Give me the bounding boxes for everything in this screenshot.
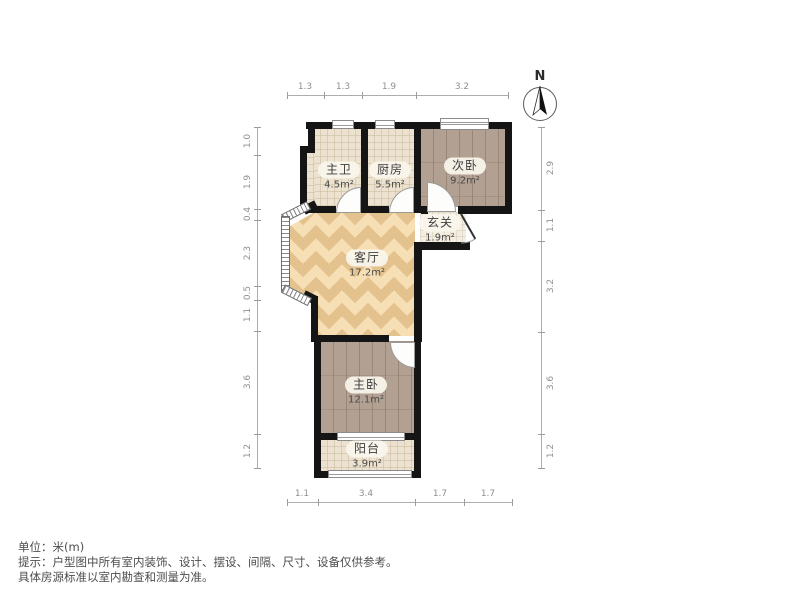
wall-right-bedroom2 <box>505 122 512 214</box>
room-name: 玄关 <box>419 215 461 232</box>
window-master-bath <box>332 120 354 129</box>
room-name: 厨房 <box>369 162 411 179</box>
dim-label: 1.7 <box>481 489 495 499</box>
dim-label: 0.5 <box>243 286 253 300</box>
compass-needle-east <box>540 86 547 115</box>
dim-label: 3.4 <box>359 489 373 499</box>
room-area: 3.9m² <box>346 459 388 471</box>
dim-label: 3.2 <box>546 279 556 293</box>
room-label-bedroom-second: 次卧 9.2m² <box>444 155 486 188</box>
north-label: N <box>535 69 546 84</box>
room-floor-master-bath-ext <box>306 150 315 206</box>
room-name: 主卧 <box>345 377 387 394</box>
window-kitchen <box>375 120 395 129</box>
room-area: 4.5m² <box>318 180 360 192</box>
dim-label: 1.0 <box>243 134 253 148</box>
dim-label: 1.3 <box>336 82 350 92</box>
dim-label: 3.6 <box>546 376 556 390</box>
wall-living-bedroom-divider <box>311 335 389 342</box>
room-name: 阳台 <box>346 441 388 458</box>
dim-label: 1.9 <box>382 82 396 92</box>
room-label-living-room: 客厅 17.2m² <box>346 247 388 280</box>
wall-slider-stub-right <box>404 433 421 440</box>
room-label-hallway: 玄关 1.9m² <box>419 212 461 245</box>
room-area: 5.5m² <box>369 180 411 192</box>
tip-note-line1: 提示：户型图中所有室内装饰、设计、摆设、间隔、尺寸、设备仅供参考。 <box>18 555 398 570</box>
compass-needle-west <box>533 86 540 115</box>
dim-label: 1.1 <box>546 218 556 232</box>
wall-living-right <box>414 242 422 342</box>
room-area: 1.9m² <box>419 233 461 245</box>
room-area: 17.2m² <box>346 268 388 280</box>
room-area: 12.1m² <box>345 395 387 407</box>
dim-label: 1.3 <box>298 82 312 92</box>
window-bedroom-second <box>440 118 489 130</box>
room-label-kitchen: 厨房 5.5m² <box>369 159 411 192</box>
dim-label: 2.3 <box>243 246 253 260</box>
room-name: 主卫 <box>318 162 360 179</box>
dim-label: 0.4 <box>243 207 253 221</box>
bay-window-left <box>281 216 290 292</box>
dim-label: 1.1 <box>295 489 309 499</box>
wall-divider-bath-kitchen <box>361 128 368 206</box>
dim-label: 3.2 <box>455 82 469 92</box>
wall-slider-stub-left <box>314 433 338 440</box>
dim-label: 1.1 <box>243 308 253 322</box>
wall-bedroom-left <box>314 335 321 478</box>
dim-label: 1.7 <box>433 489 447 499</box>
room-area: 9.2m² <box>444 176 486 188</box>
dim-label: 2.9 <box>546 161 556 175</box>
dim-label: 1.2 <box>546 444 556 458</box>
window-balcony <box>328 470 412 478</box>
wall-divider-kitchen-bedroom2 <box>414 122 421 213</box>
tip-note-line2: 具体房源标准以室内勘查和测量为准。 <box>18 570 214 585</box>
wall-bedroom-right <box>414 335 421 478</box>
dim-label: 3.6 <box>243 375 253 389</box>
room-label-master-bath: 主卫 4.5m² <box>318 159 360 192</box>
room-label-master-bedroom: 主卧 12.1m² <box>345 374 387 407</box>
room-name: 客厅 <box>346 250 388 267</box>
unit-note: 单位：米(m) <box>18 540 84 555</box>
floorplan-page: 主卫 4.5m² 厨房 5.5m² 次卧 9.2m² 玄关 1.9m² 客厅 1… <box>0 0 800 600</box>
dim-label: 1.9 <box>243 175 253 189</box>
dim-label: 1.2 <box>243 444 253 458</box>
wall-living-top-mid <box>361 206 389 213</box>
room-name: 次卧 <box>444 158 486 175</box>
room-label-balcony: 阳台 3.9m² <box>346 438 388 471</box>
north-compass: N <box>521 64 561 126</box>
